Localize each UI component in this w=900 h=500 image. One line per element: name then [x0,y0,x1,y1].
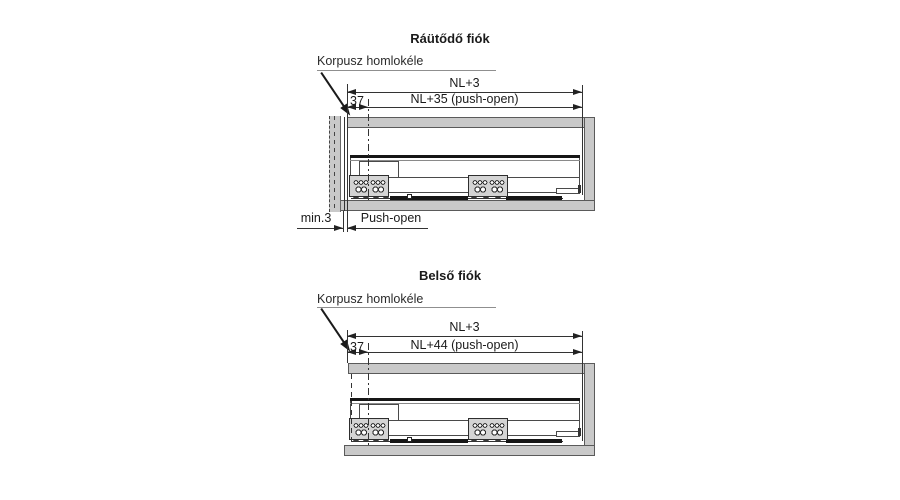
drawer-front-section [329,116,341,212]
drawer-runner [350,155,582,202]
carcass-front-edge-label: Korpusz homlokéle [317,292,423,306]
diagram-title: Belső fiók [330,268,570,283]
roller-carriage [468,175,508,197]
extension-line-gap [343,211,344,232]
locking-centerline [368,99,369,200]
runner-mount-clip [407,437,412,442]
diagram-title: Ráütődő fiók [330,31,570,46]
label-underline [317,307,496,308]
dim-label-37: 37 [344,94,370,108]
dim-label-runner-length: NL+44 (push-open) [347,338,582,352]
carcass-front-edge-label: Korpusz homlokéle [317,54,423,68]
runner-bottom-rail [506,196,562,200]
cabinet-top-panel [347,117,595,128]
runner-bottom-rail [390,439,468,443]
cabinet-bottom-panel [344,445,595,456]
roller-carriage [349,418,389,440]
locking-centerline [368,343,369,445]
extension-line-rear [582,85,583,195]
diagram-inner-drawer: Belső fiók Korpusz homlokéle NL+3 NL+44 … [0,246,900,500]
extension-line-rear [582,331,583,441]
roller-carriage [349,175,389,197]
cabinet-back-panel [584,363,595,455]
runner-bottom-rail [390,196,468,200]
cabinet-top-panel [348,363,595,374]
runner-rear-step [556,431,580,437]
runner-rear-bracket [578,185,581,193]
dim-label-37: 37 [344,340,370,354]
roller-carriage [468,418,508,440]
drawer-runner [350,398,582,445]
leader-line [320,72,345,107]
runner-mount-clip [407,194,412,199]
leader-line [320,308,345,343]
diagram-overlay-front-drawer: Ráütődő fiók Korpusz homlokéle NL+3 NL+3… [0,0,900,246]
dim-arrowhead [347,225,356,231]
dimension-line-runner-length [347,107,582,108]
dim-label-nl3: NL+3 [347,76,582,90]
dimension-line-push-open [347,228,428,229]
dim-label-nl3: NL+3 [347,320,582,334]
label-underline [317,70,496,71]
runner-bottom-rail [506,439,562,443]
dim-label-runner-length: NL+35 (push-open) [347,92,582,106]
dim-label-push-open: Push-open [352,211,430,225]
runner-top-rail [350,155,580,158]
carcass-front-edge [344,117,345,211]
dimension-line-runner-length [347,352,582,353]
dimension-line-nl3 [347,336,582,337]
dim-arrowhead [334,225,343,231]
dim-label-min3: min.3 [293,211,339,225]
front-panel-dashed-edge [334,116,335,212]
cabinet-back-panel [584,117,595,211]
runner-rear-bracket [578,428,581,436]
technical-drawing-canvas: Ráütődő fiók Korpusz homlokéle NL+3 NL+3… [0,0,900,500]
runner-top-rail [350,398,580,401]
carcass-front-edge-dashed [351,374,352,445]
runner-rear-step [556,188,580,194]
carcass-front-edge [347,117,348,211]
